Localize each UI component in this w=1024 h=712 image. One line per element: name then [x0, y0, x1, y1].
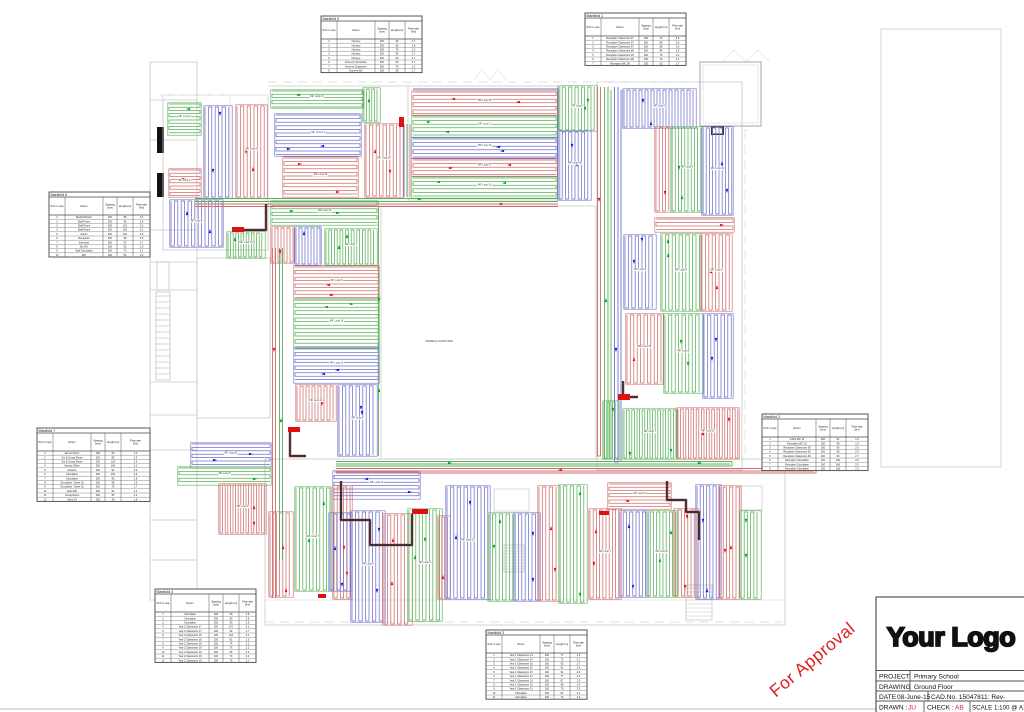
- svg-text:2.6: 2.6: [855, 447, 859, 450]
- svg-text:Circulation: Circulation: [184, 617, 196, 620]
- svg-text:2.1: 2.1: [140, 250, 144, 253]
- svg-text:MF. Loop 8: MF. Loop 8: [179, 115, 191, 118]
- svg-text:MF. Loop 9: MF. Loop 9: [634, 492, 646, 495]
- svg-text:Port / Loop: Port / Loop: [323, 28, 336, 32]
- svg-text:MF. Loop 17: MF. Loop 17: [478, 164, 492, 167]
- svg-text:Nursery: Nursery: [352, 57, 362, 60]
- svg-text:2.4: 2.4: [577, 684, 581, 687]
- svg-text:2.7: 2.7: [412, 57, 416, 60]
- svg-text:2.7: 2.7: [412, 61, 416, 64]
- svg-text:JU: JU: [908, 705, 916, 712]
- svg-text:Year 1 Classroom 14: Year 1 Classroom 14: [509, 658, 533, 661]
- svg-text:Circulation: Circulation: [66, 477, 78, 480]
- svg-text:2.9: 2.9: [134, 461, 138, 464]
- svg-text:1.1: 1.1: [134, 490, 138, 493]
- svg-text:Manifold 2: Manifold 2: [764, 415, 781, 419]
- svg-text:200: 200: [96, 482, 101, 485]
- svg-text:Reception Classroom 08: Reception Classroom 08: [606, 54, 634, 57]
- svg-text:(l/m): (l/m): [245, 603, 250, 607]
- svg-text:MF. Loop 7: MF. Loop 7: [644, 430, 656, 433]
- svg-text:2.4: 2.4: [246, 651, 250, 654]
- svg-text:200: 200: [108, 246, 113, 249]
- svg-text:Circulation: Circulation: [515, 692, 527, 695]
- svg-text:200: 200: [644, 50, 649, 53]
- svg-text:Room: Room: [617, 25, 624, 29]
- svg-text:200: 200: [214, 647, 219, 650]
- svg-text:200: 200: [380, 53, 385, 56]
- svg-text:Admin: Admin: [80, 233, 88, 236]
- svg-text:Year 2 Classroom 19: Year 2 Classroom 19: [178, 647, 202, 650]
- svg-text:Staff Circulation: Staff Circulation: [75, 250, 93, 253]
- svg-text:Reception Classroom 08: Reception Classroom 08: [606, 50, 634, 53]
- svg-text:Year 2 Classroom 18: Year 2 Classroom 18: [178, 638, 202, 641]
- svg-text:1.4: 1.4: [140, 216, 144, 219]
- svg-text:Staff Room: Staff Room: [78, 229, 90, 232]
- svg-text:CHECK :: CHECK :: [927, 705, 954, 712]
- svg-text:2.1: 2.1: [577, 658, 581, 661]
- svg-text:Manifold 7: Manifold 7: [39, 429, 56, 433]
- svg-text:Circulation: Circulation: [66, 473, 78, 476]
- svg-text:Circulation / Store 16: Circulation / Store 16: [60, 482, 84, 485]
- svg-text:CAD.No. 15047811: Rev-: CAD.No. 15047811: Rev-: [931, 694, 1005, 701]
- svg-text:1.9: 1.9: [855, 442, 859, 445]
- svg-text:Reception Circulation: Reception Circulation: [785, 468, 809, 471]
- svg-text:1.7: 1.7: [140, 241, 144, 244]
- svg-text:DRAWING: DRAWING: [879, 684, 911, 691]
- svg-text:MF. Loop 13: MF. Loop 13: [478, 144, 492, 147]
- svg-text:(l/m): (l/m): [576, 644, 581, 648]
- svg-text:200: 200: [380, 44, 385, 47]
- svg-text:200: 200: [545, 688, 550, 691]
- svg-text:MF. Loop 8: MF. Loop 8: [678, 350, 690, 353]
- svg-text:(mm): (mm): [107, 206, 113, 210]
- svg-text:Room: Room: [81, 204, 88, 208]
- svg-text:Year 1 Classroom 15: Year 1 Classroom 15: [509, 667, 533, 670]
- svg-text:2.8: 2.8: [246, 617, 250, 620]
- svg-text:WC: WC: [82, 254, 86, 257]
- svg-text:Circulation: Circulation: [515, 696, 527, 699]
- svg-text:2.4: 2.4: [134, 494, 138, 497]
- svg-text:2.2: 2.2: [246, 643, 250, 646]
- svg-text:200: 200: [96, 498, 101, 501]
- svg-text:1.9: 1.9: [855, 438, 859, 441]
- svg-text:200: 200: [380, 57, 385, 60]
- svg-text:MF. Loop 11: MF. Loop 11: [310, 399, 324, 402]
- svg-text:MF. Loop 17: MF. Loop 17: [178, 179, 192, 182]
- svg-text:3.1: 3.1: [246, 626, 250, 629]
- svg-text:Year 2 Classroom 18: Year 2 Classroom 18: [178, 643, 202, 646]
- svg-text:Port / Loop: Port / Loop: [39, 440, 52, 444]
- svg-text:PROJECT: PROJECT: [879, 674, 910, 681]
- svg-text:Year 1 Classroom 13: Year 1 Classroom 13: [509, 684, 533, 687]
- svg-text:MF. Loop 15: MF. Loop 15: [638, 345, 652, 348]
- svg-text:Primary School: Primary School: [914, 674, 959, 681]
- svg-text:INTERNAL COURTYARD: INTERNAL COURTYARD: [425, 340, 453, 343]
- svg-text:Group Room: Group Room: [65, 494, 79, 497]
- svg-text:200: 200: [214, 622, 219, 625]
- svg-text:Year 1 Classroom 14: Year 1 Classroom 14: [509, 654, 533, 657]
- svg-text:2.5: 2.5: [855, 463, 859, 466]
- svg-text:Manifold 5: Manifold 5: [323, 17, 340, 21]
- svg-text:Server Room: Server Room: [65, 452, 80, 455]
- svg-text:(l/m): (l/m): [675, 27, 680, 31]
- svg-text:MF. Loop 13: MF. Loop 13: [310, 95, 324, 98]
- svg-text:2.7: 2.7: [412, 40, 416, 43]
- svg-text:Port / Loop: Port / Loop: [488, 642, 501, 646]
- svg-text:102: 102: [123, 225, 128, 228]
- svg-text:200: 200: [821, 455, 826, 458]
- svg-text:Year 2 Classroom 17: Year 2 Classroom 17: [178, 630, 202, 633]
- svg-text:2.2: 2.2: [134, 469, 138, 472]
- svg-text:Reception WC 10: Reception WC 10: [787, 442, 807, 445]
- svg-text:200: 200: [214, 617, 219, 620]
- svg-text:MF. Loop 15: MF. Loop 15: [318, 209, 332, 212]
- svg-text:2.2: 2.2: [577, 654, 581, 657]
- svg-text:Length (m): Length (m): [225, 601, 238, 605]
- svg-text:MF. Loop 7: MF. Loop 7: [345, 243, 357, 246]
- svg-text:1.5: 1.5: [134, 498, 138, 501]
- svg-text:200: 200: [380, 70, 385, 73]
- svg-text:(mm): (mm): [544, 644, 550, 648]
- svg-text:Circulation / Store 16: Circulation / Store 16: [60, 486, 84, 489]
- svg-text:(l/m): (l/m): [133, 442, 138, 446]
- svg-text:MF. Loop 11: MF. Loop 11: [702, 430, 716, 433]
- svg-text:200: 200: [380, 61, 385, 64]
- svg-text:MF. Loop 14: MF. Loop 14: [239, 241, 253, 244]
- svg-text:Port / Loop: Port / Loop: [587, 25, 600, 29]
- svg-text:200: 200: [96, 456, 101, 459]
- svg-text:200: 200: [96, 452, 101, 455]
- svg-text:2.3: 2.3: [676, 37, 680, 40]
- svg-text:2.7: 2.7: [412, 53, 416, 56]
- svg-text:MF. Loop 9: MF. Loop 9: [362, 563, 374, 566]
- svg-text:2.2: 2.2: [246, 647, 250, 650]
- svg-text:Circulation: Circulation: [184, 613, 196, 616]
- svg-text:2.8: 2.8: [412, 44, 416, 47]
- svg-text:MF. Loop 8: MF. Loop 8: [656, 550, 668, 553]
- svg-text:1.7: 1.7: [676, 62, 680, 65]
- svg-text:MF. Loop 12: MF. Loop 12: [711, 167, 725, 170]
- svg-text:MF. Loop 11: MF. Loop 11: [330, 362, 344, 365]
- svg-text:Finance: Finance: [68, 469, 78, 472]
- svg-text:106: 106: [836, 463, 841, 466]
- svg-text:Length (m): Length (m): [556, 642, 569, 646]
- svg-text:200: 200: [108, 216, 113, 219]
- svg-text:103: 103: [229, 634, 234, 637]
- svg-text:200: 200: [821, 451, 826, 454]
- svg-text:106: 106: [836, 459, 841, 462]
- svg-text:For Approval: For Approval: [765, 618, 858, 701]
- svg-text:MF. Loop 7: MF. Loop 7: [307, 535, 319, 538]
- svg-text:MF. Loop 6: MF. Loop 6: [191, 220, 203, 223]
- svg-text:200: 200: [108, 254, 113, 257]
- svg-text:SCALE 1:100 @ A1: SCALE 1:100 @ A1: [972, 705, 1024, 712]
- svg-text:Nursery: Nursery: [352, 53, 362, 56]
- svg-text:Deputy Office: Deputy Office: [64, 465, 80, 468]
- svg-text:Manifold 4: Manifold 4: [157, 590, 174, 594]
- svg-text:200: 200: [214, 651, 219, 654]
- svg-text:3.1: 3.1: [246, 634, 250, 637]
- svg-text:2.2: 2.2: [676, 54, 680, 57]
- svg-text:Year 1 Classroom 13: Year 1 Classroom 13: [509, 679, 533, 682]
- svg-text:AB: AB: [955, 705, 964, 712]
- svg-text:MF. Loop 14: MF. Loop 14: [311, 131, 325, 134]
- svg-text:DRAWN :: DRAWN :: [879, 705, 907, 712]
- svg-text:Length (m): Length (m): [391, 28, 404, 32]
- svg-text:2.3: 2.3: [577, 696, 581, 699]
- svg-text:2.8: 2.8: [140, 220, 144, 223]
- svg-text:200: 200: [821, 468, 826, 471]
- svg-text:Adult WC: Adult WC: [67, 490, 78, 493]
- svg-text:Year 1 Classroom 15: Year 1 Classroom 15: [509, 671, 533, 674]
- svg-text:MF. Loop 7: MF. Loop 7: [479, 123, 491, 126]
- svg-text:2.3: 2.3: [577, 688, 581, 691]
- svg-text:Sm & Group Room: Sm & Group Room: [61, 456, 82, 459]
- svg-text:3.0: 3.0: [140, 225, 144, 228]
- svg-text:Sm & Group Room: Sm & Group Room: [61, 461, 82, 464]
- svg-text:200: 200: [214, 613, 219, 616]
- svg-text:(mm): (mm): [643, 27, 649, 31]
- svg-text:200: 200: [644, 58, 649, 61]
- svg-text:105: 105: [123, 229, 128, 232]
- svg-text:1.7: 1.7: [412, 70, 416, 73]
- svg-text:MF. Loop 8: MF. Loop 8: [246, 148, 258, 151]
- svg-text:200: 200: [108, 250, 113, 253]
- svg-text:2.6: 2.6: [676, 46, 680, 49]
- svg-text:200: 200: [821, 438, 826, 441]
- svg-text:2.7: 2.7: [246, 630, 250, 633]
- svg-text:MF. Loop 14: MF. Loop 14: [377, 157, 391, 160]
- svg-text:Year 2 Classroom 18: Year 2 Classroom 18: [178, 634, 202, 637]
- svg-text:200: 200: [821, 459, 826, 462]
- svg-text:MF. Loop 13: MF. Loop 13: [461, 539, 475, 542]
- svg-text:2.9: 2.9: [855, 451, 859, 454]
- svg-text:Port / Loop: Port / Loop: [51, 204, 64, 208]
- svg-text:200: 200: [214, 638, 219, 641]
- svg-text:2.6: 2.6: [577, 667, 581, 670]
- svg-text:2.2: 2.2: [577, 675, 581, 678]
- svg-text:Nursery: Nursery: [352, 49, 362, 52]
- svg-text:MF. Loop 14: MF. Loop 14: [330, 320, 344, 323]
- svg-text:2.2: 2.2: [676, 58, 680, 61]
- svg-text:(l/m): (l/m): [854, 428, 859, 432]
- svg-text:200: 200: [96, 494, 101, 497]
- svg-text:Year 1 Classroom 13: Year 1 Classroom 13: [509, 688, 533, 691]
- svg-text:Port / Loop: Port / Loop: [157, 601, 170, 605]
- svg-text:Your Logo: Your Logo: [887, 622, 1015, 652]
- svg-text:2.3: 2.3: [246, 638, 250, 641]
- svg-text:200: 200: [96, 465, 101, 468]
- svg-text:102: 102: [123, 233, 128, 236]
- svg-text:200: 200: [545, 684, 550, 687]
- svg-text:Reception Classroom 09: Reception Classroom 09: [783, 455, 811, 458]
- svg-text:2.3: 2.3: [412, 49, 416, 52]
- svg-text:MF. Loop 8: MF. Loop 8: [634, 268, 646, 271]
- svg-text:1.9: 1.9: [140, 246, 144, 249]
- svg-text:DATE: DATE: [879, 694, 897, 701]
- svg-text:Year 1 Classroom 13: Year 1 Classroom 13: [509, 675, 533, 678]
- svg-text:Interview: Interview: [79, 241, 89, 244]
- svg-text:200: 200: [214, 630, 219, 633]
- svg-text:200: 200: [380, 40, 385, 43]
- svg-text:Reception Classroom 07: Reception Classroom 07: [606, 37, 634, 40]
- svg-text:2.4: 2.4: [577, 692, 581, 695]
- svg-text:Reception Classroom 08: Reception Classroom 08: [606, 58, 634, 61]
- svg-text:200: 200: [96, 473, 101, 476]
- svg-text:Dis WC: Dis WC: [80, 246, 89, 249]
- svg-text:2.5: 2.5: [577, 679, 581, 682]
- svg-text:2.8: 2.8: [134, 477, 138, 480]
- svg-text:Room: Room: [69, 440, 76, 444]
- svg-text:200: 200: [821, 447, 826, 450]
- svg-text:200: 200: [545, 663, 550, 666]
- svg-text:Store 26: Store 26: [67, 498, 77, 501]
- svg-text:200: 200: [545, 654, 550, 657]
- svg-text:200: 200: [380, 49, 385, 52]
- svg-text:MF. Loop 5: MF. Loop 5: [419, 561, 431, 564]
- svg-text:Staff Room: Staff Room: [78, 225, 90, 228]
- svg-text:Reception Circulation: Reception Circulation: [785, 459, 809, 462]
- svg-text:(mm): (mm): [820, 428, 826, 432]
- svg-text:MF. Loop 5: MF. Loop 5: [331, 279, 343, 282]
- svg-text:Manifold 1: Manifold 1: [587, 14, 604, 18]
- svg-text:200: 200: [214, 659, 219, 662]
- svg-text:Staff Room: Staff Room: [78, 220, 90, 223]
- svg-text:08-June-15: 08-June-15: [897, 694, 931, 701]
- svg-text:2.1: 2.1: [246, 659, 250, 662]
- svg-text:106: 106: [836, 468, 841, 471]
- svg-text:200: 200: [545, 696, 550, 699]
- svg-text:200: 200: [214, 634, 219, 637]
- svg-text:Infant WC 11: Infant WC 11: [790, 438, 805, 441]
- svg-text:MF. Loop 7: MF. Loop 7: [572, 105, 584, 108]
- svg-text:2.5: 2.5: [134, 456, 138, 459]
- svg-text:(l/m): (l/m): [139, 206, 144, 210]
- svg-text:(l/m): (l/m): [411, 30, 416, 34]
- svg-text:200: 200: [644, 41, 649, 44]
- svg-text:MF. Loop 11: MF. Loop 11: [225, 452, 239, 455]
- svg-text:Room: Room: [794, 426, 801, 430]
- svg-text:200: 200: [644, 37, 649, 40]
- svg-text:2.6: 2.6: [134, 473, 138, 476]
- svg-text:200: 200: [96, 486, 101, 489]
- svg-text:1.9: 1.9: [134, 482, 138, 485]
- svg-text:2.2: 2.2: [412, 65, 416, 68]
- svg-text:200: 200: [644, 62, 649, 65]
- svg-text:200: 200: [821, 463, 826, 466]
- svg-text:MF. Loop 8: MF. Loop 8: [711, 269, 723, 272]
- svg-text:200: 200: [214, 643, 219, 646]
- svg-text:Port / Loop: Port / Loop: [764, 426, 777, 430]
- svg-text:200: 200: [96, 461, 101, 464]
- svg-text:200: 200: [108, 220, 113, 223]
- svg-text:200: 200: [644, 46, 649, 49]
- svg-text:Year 2 Classroom 19: Year 2 Classroom 19: [178, 651, 202, 654]
- svg-text:200: 200: [96, 477, 101, 480]
- svg-text:108: 108: [111, 465, 116, 468]
- svg-text:MF. Loop 13: MF. Loop 13: [478, 184, 492, 187]
- svg-text:200: 200: [545, 671, 550, 674]
- svg-text:118: 118: [111, 461, 116, 464]
- svg-text:MF. Loop 8: MF. Loop 8: [681, 166, 693, 169]
- svg-text:200: 200: [644, 54, 649, 57]
- svg-text:Length (m): Length (m): [655, 25, 668, 29]
- svg-text:200: 200: [96, 490, 101, 493]
- svg-text:109: 109: [111, 473, 116, 476]
- svg-text:Nursery Homebase: Nursery Homebase: [345, 61, 367, 64]
- svg-text:200: 200: [380, 65, 385, 68]
- svg-text:200: 200: [214, 626, 219, 629]
- svg-text:200: 200: [545, 658, 550, 661]
- svg-text:MF. Loop 19: MF. Loop 19: [568, 162, 582, 165]
- svg-text:Circulation: Circulation: [184, 622, 196, 625]
- svg-text:MF. Loop 8: MF. Loop 8: [675, 269, 687, 272]
- svg-text:MF. Loop 5: MF. Loop 5: [237, 505, 249, 508]
- svg-text:2.7: 2.7: [577, 663, 581, 666]
- svg-text:Year 2 Classroom 19: Year 2 Classroom 19: [178, 655, 202, 658]
- svg-text:Reception: Reception: [78, 237, 90, 240]
- svg-text:Year 2 Classroom 19: Year 2 Classroom 19: [178, 659, 202, 662]
- svg-text:Nursery Cloakroom: Nursery Cloakroom: [345, 65, 367, 68]
- svg-text:(mm): (mm): [213, 603, 219, 607]
- svg-text:Nursery: Nursery: [352, 44, 362, 47]
- svg-text:200: 200: [545, 667, 550, 670]
- svg-text:Year 2 Classroom 17: Year 2 Classroom 17: [178, 626, 202, 629]
- svg-text:1.6: 1.6: [140, 254, 144, 257]
- svg-text:Reception Classroom 07: Reception Classroom 07: [606, 46, 634, 49]
- svg-text:Length (m): Length (m): [832, 426, 845, 430]
- svg-text:Room: Room: [187, 601, 194, 605]
- svg-text:MF. Loop 8: MF. Loop 8: [219, 472, 231, 475]
- svg-text:200: 200: [108, 237, 113, 240]
- svg-text:Nursery: Nursery: [352, 40, 362, 43]
- svg-text:2.6: 2.6: [855, 459, 859, 462]
- svg-text:1.2: 1.2: [134, 452, 138, 455]
- svg-text:(mm): (mm): [95, 442, 101, 446]
- svg-text:3.1: 3.1: [140, 229, 144, 232]
- svg-text:1.7: 1.7: [134, 486, 138, 489]
- svg-text:200: 200: [108, 225, 113, 228]
- svg-text:2.2: 2.2: [246, 655, 250, 658]
- svg-text:MF. Loop 9: MF. Loop 9: [352, 417, 364, 420]
- svg-text:Manifold 3: Manifold 3: [488, 631, 505, 635]
- svg-text:2.7: 2.7: [855, 455, 859, 458]
- svg-text:Length (m): Length (m): [107, 440, 120, 444]
- svg-text:200: 200: [214, 655, 219, 658]
- svg-text:MF. Loop 10: MF. Loop 10: [478, 99, 492, 102]
- svg-text:Reception Classroom 07: Reception Classroom 07: [606, 41, 634, 44]
- svg-text:200: 200: [545, 692, 550, 695]
- svg-text:200: 200: [545, 679, 550, 682]
- svg-text:2.6: 2.6: [246, 622, 250, 625]
- svg-text:200: 200: [108, 241, 113, 244]
- svg-text:Length (m): Length (m): [119, 204, 132, 208]
- svg-text:200: 200: [108, 229, 113, 232]
- svg-text:Reception Classroom 09: Reception Classroom 09: [783, 447, 811, 450]
- svg-text:(mm): (mm): [379, 30, 385, 34]
- svg-text:200: 200: [96, 469, 101, 472]
- svg-text:200: 200: [108, 233, 113, 236]
- svg-text:1.9: 1.9: [140, 233, 144, 236]
- svg-text:Medical Room: Medical Room: [76, 216, 92, 219]
- svg-text:MF. Loop 14: MF. Loop 14: [370, 481, 384, 484]
- svg-text:200: 200: [545, 675, 550, 678]
- svg-text:Reception WC 06: Reception WC 06: [610, 62, 630, 65]
- svg-text:200: 200: [821, 442, 826, 445]
- svg-text:MF. Loop 6: MF. Loop 6: [654, 105, 666, 108]
- svg-text:Room: Room: [353, 28, 360, 32]
- svg-text:Room: Room: [518, 642, 525, 646]
